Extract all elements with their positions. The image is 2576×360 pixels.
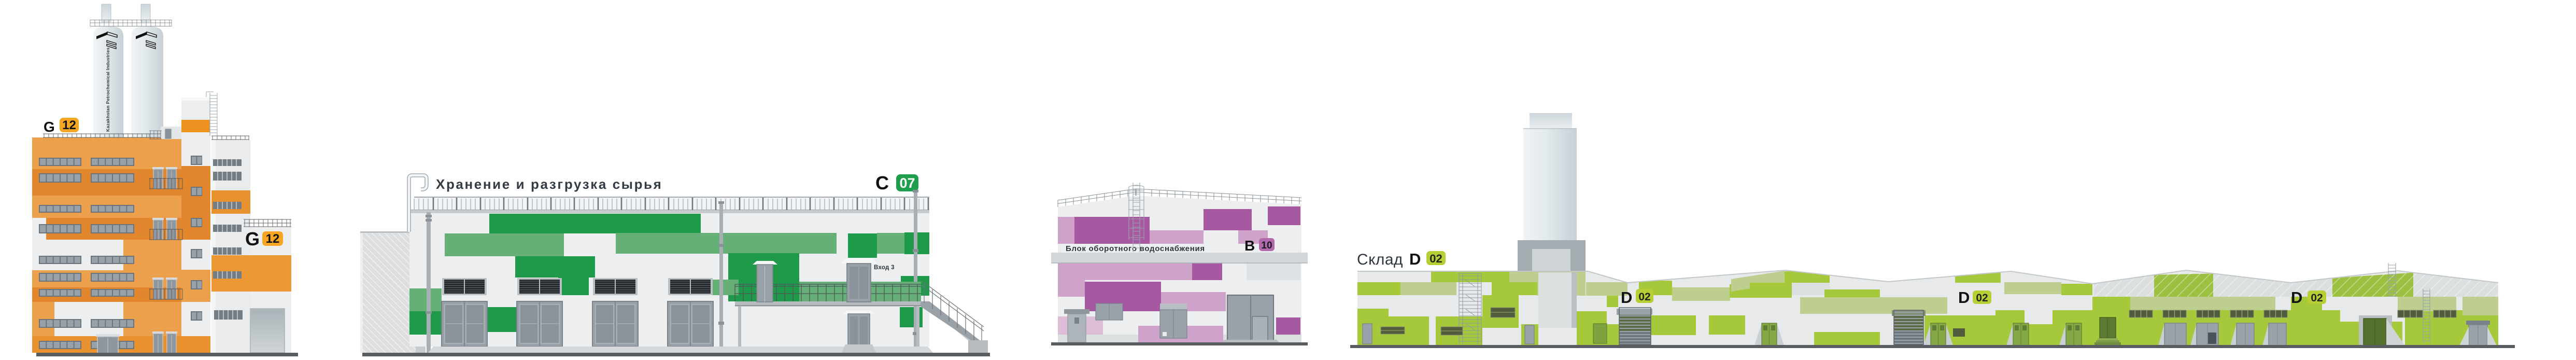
svg-text:D: D bbox=[1409, 250, 1421, 268]
svg-text:G: G bbox=[245, 228, 260, 250]
svg-text:02: 02 bbox=[2311, 292, 2323, 304]
svg-text:D: D bbox=[2291, 288, 2302, 307]
svg-text:D: D bbox=[1958, 288, 1970, 307]
svg-text:02: 02 bbox=[1638, 291, 1650, 303]
svg-text:07: 07 bbox=[899, 175, 915, 191]
svg-text:G: G bbox=[44, 119, 55, 135]
svg-text:C: C bbox=[875, 172, 889, 193]
svg-text:02: 02 bbox=[1429, 252, 1442, 265]
svg-text:B: B bbox=[1244, 238, 1255, 254]
svg-text:12: 12 bbox=[62, 118, 76, 132]
svg-text:Хранение и разгрузка сырья: Хранение и разгрузка сырья bbox=[436, 176, 662, 192]
svg-text:12: 12 bbox=[266, 232, 280, 246]
svg-text:Kazakhstan Petrochemical Ind: Kazakhstan Petrochemical Industries bbox=[105, 47, 110, 132]
svg-text:02: 02 bbox=[1976, 292, 1988, 304]
svg-text:D: D bbox=[1621, 288, 1632, 307]
svg-text:Склад: Склад bbox=[1357, 251, 1403, 268]
svg-text:Блок оборотного водоснабжения: Блок оборотного водоснабжения bbox=[1066, 244, 1205, 253]
svg-text:10: 10 bbox=[1261, 240, 1272, 251]
svg-text:Вход 3: Вход 3 bbox=[874, 265, 895, 271]
